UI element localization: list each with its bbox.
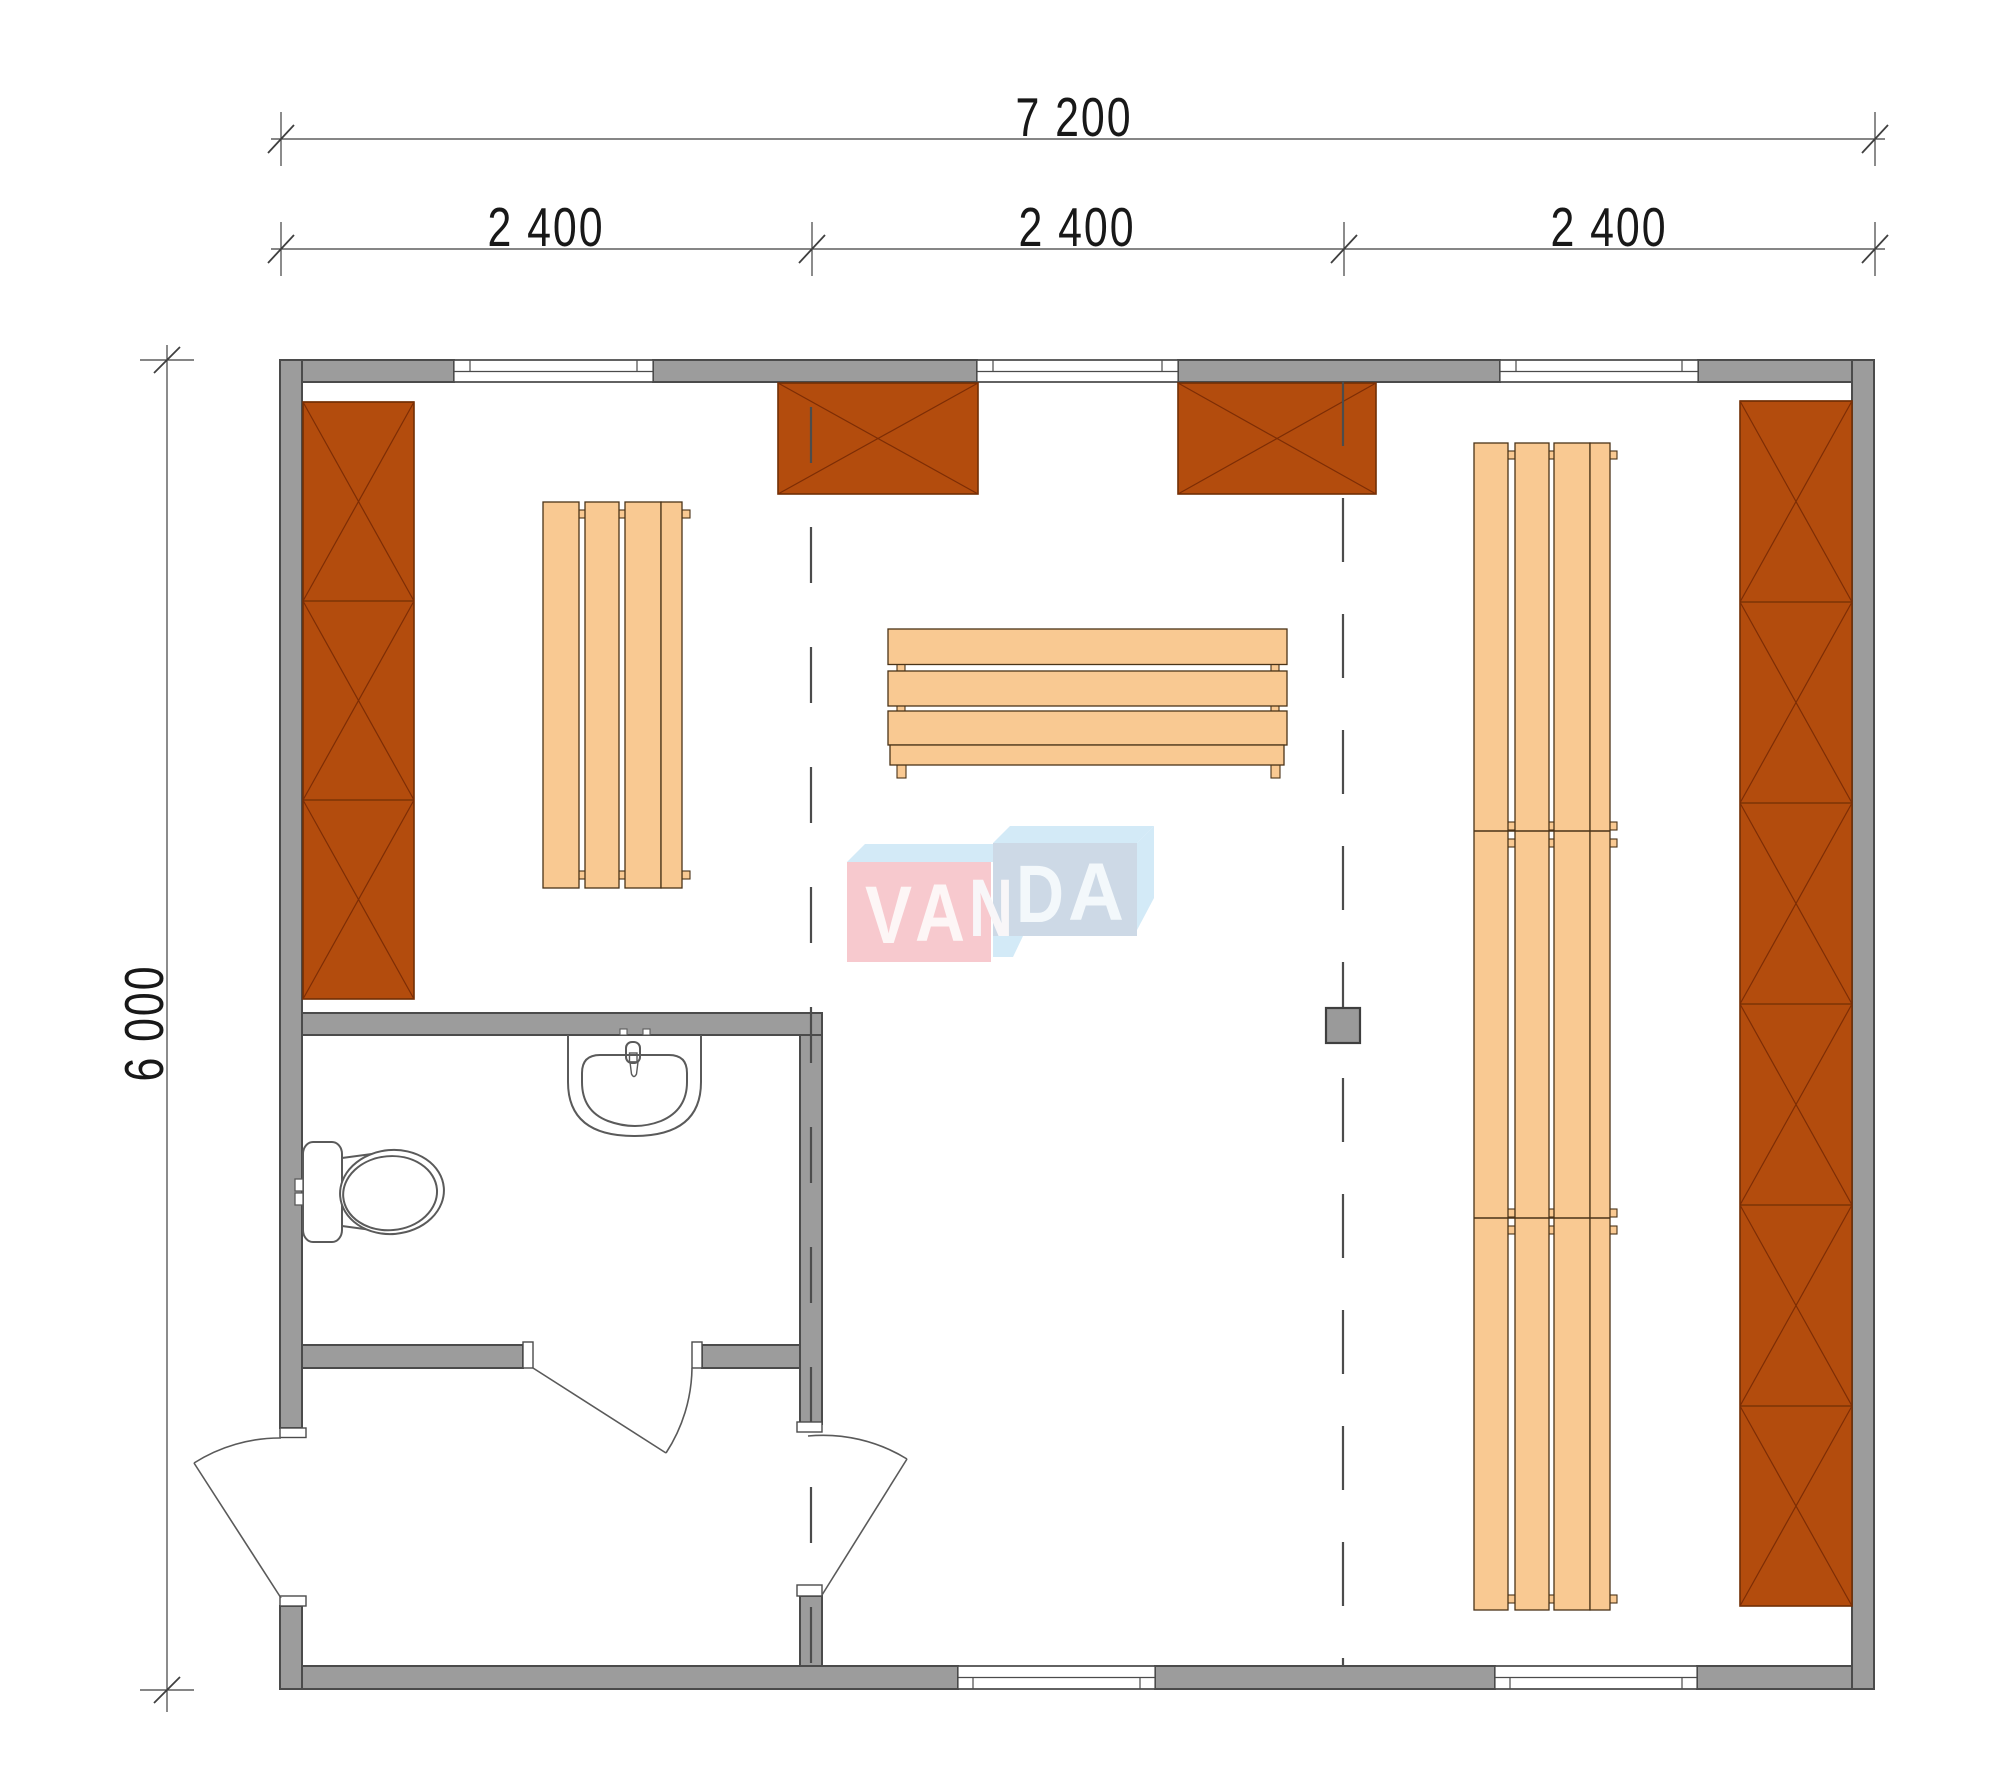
svg-text:2 400: 2 400: [1550, 197, 1667, 258]
svg-text:2 400: 2 400: [1018, 197, 1135, 258]
svg-text:7 200: 7 200: [1015, 87, 1132, 148]
svg-text:6 000: 6 000: [114, 964, 175, 1081]
svg-text:2 400: 2 400: [487, 197, 604, 258]
svg-text:N: N: [969, 863, 1013, 954]
svg-text:A: A: [1068, 847, 1124, 938]
svg-text:D: D: [1016, 849, 1064, 940]
svg-text:A: A: [915, 868, 965, 959]
svg-text:V: V: [865, 870, 912, 961]
